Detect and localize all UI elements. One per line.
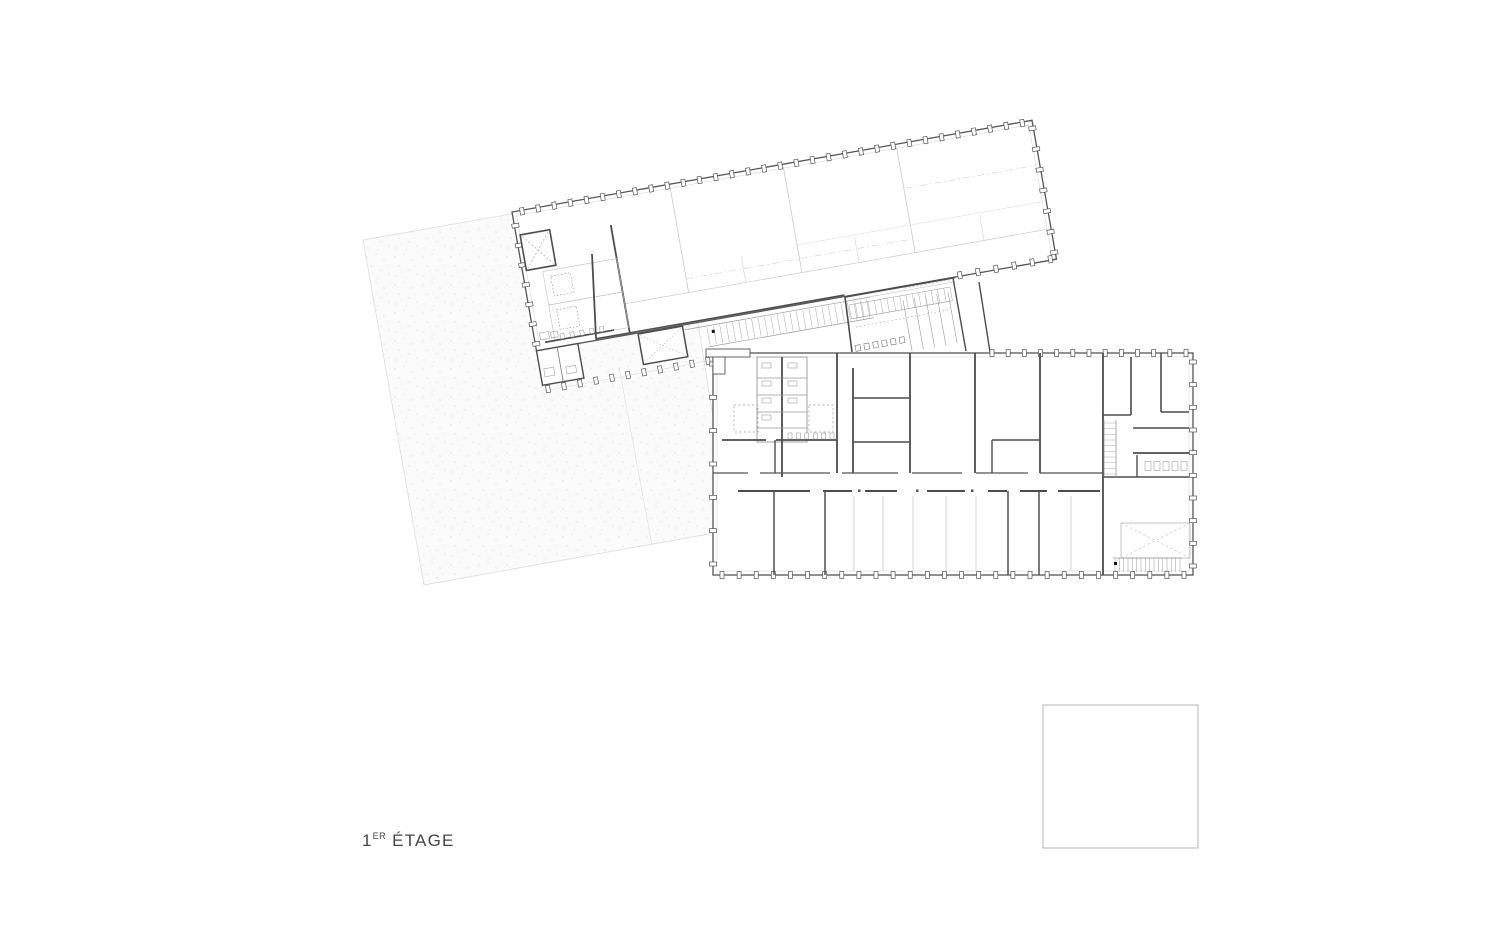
floor-name: ÉTAGE (392, 831, 454, 850)
legend-square (1043, 705, 1198, 848)
floor-label: 1ERÉTAGE (362, 831, 455, 851)
floor-plan-drawing (0, 0, 1500, 935)
floor-number: 1 (362, 831, 373, 850)
floor-ordinal: ER (373, 831, 387, 841)
canvas: { "label": { "number": "1", "ordinal": "… (0, 0, 1500, 935)
lower-building (706, 349, 1197, 579)
